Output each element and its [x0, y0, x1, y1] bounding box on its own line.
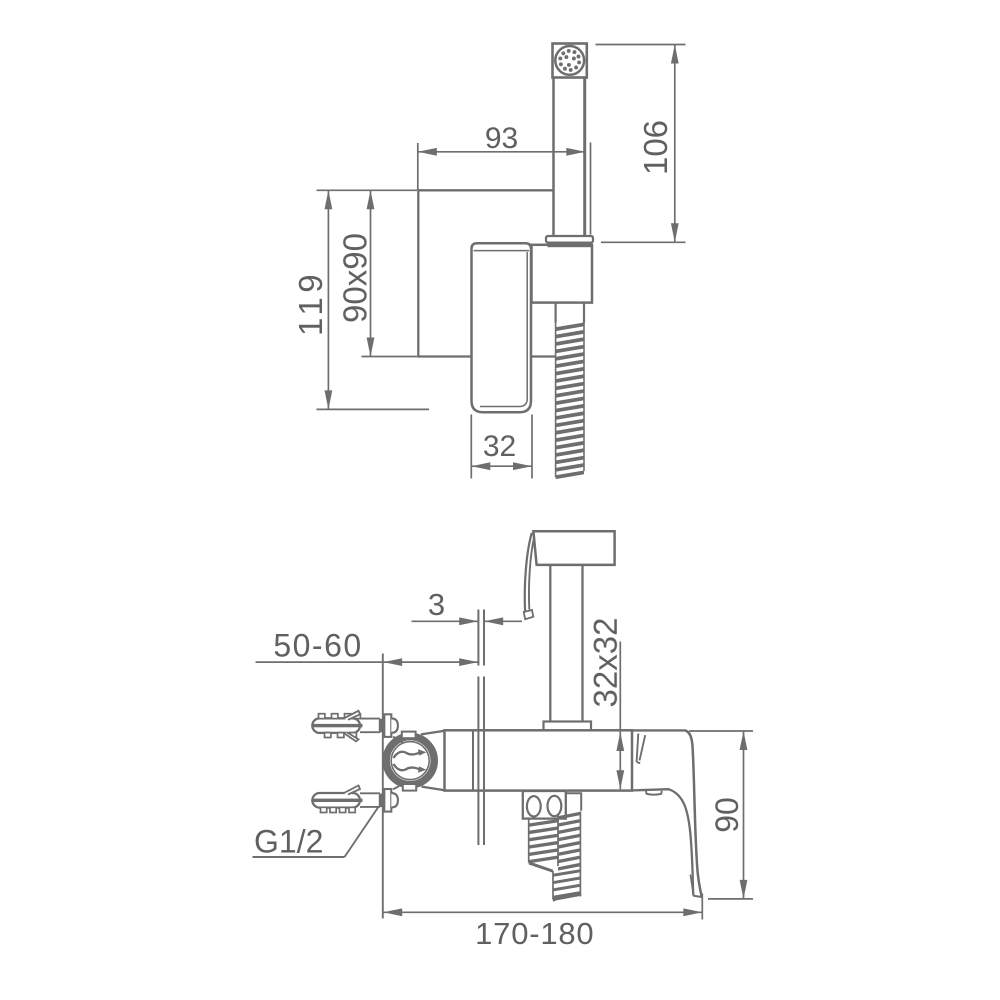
- svg-text:106: 106: [637, 120, 674, 175]
- svg-text:32: 32: [483, 430, 516, 463]
- svg-text:50-60: 50-60: [273, 628, 362, 664]
- svg-text:32x32: 32x32: [587, 618, 624, 708]
- svg-text:G1/2: G1/2: [254, 824, 323, 860]
- svg-text:119: 119: [292, 270, 329, 336]
- svg-text:90x90: 90x90: [336, 233, 373, 323]
- svg-text:93: 93: [485, 122, 518, 155]
- svg-text:3: 3: [428, 587, 445, 622]
- svg-text:90: 90: [709, 797, 745, 833]
- svg-text:170-180: 170-180: [475, 916, 594, 951]
